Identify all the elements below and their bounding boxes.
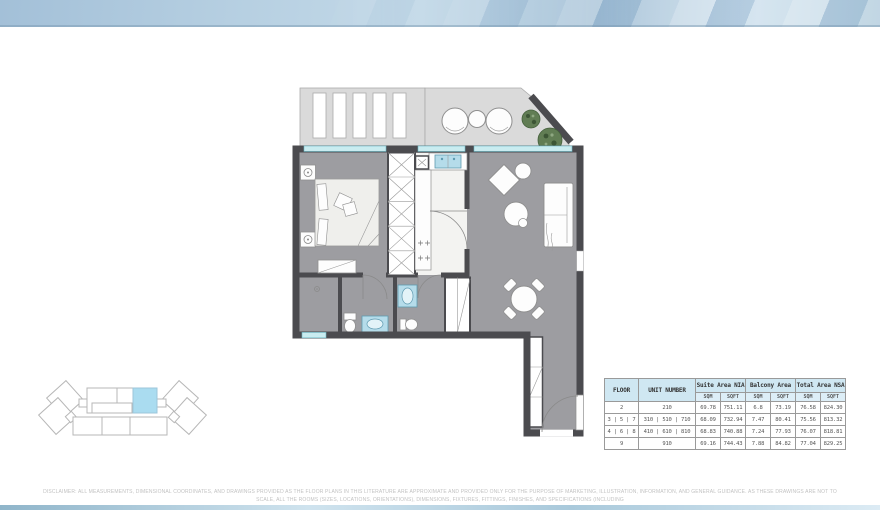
floor-plan: [288, 83, 598, 445]
col-header-balcony: Balcony Area: [746, 379, 796, 393]
toilet-icon: [344, 313, 356, 320]
cell-total-sqm: 76.58: [796, 402, 821, 414]
table-row: 9 910 69.16 744.43 7.88 84.82 77.04 829.…: [605, 438, 846, 450]
balcony-table-icon: [469, 111, 486, 128]
cell-suite-sqft: 744.43: [721, 438, 746, 450]
cell-unit: 910: [639, 438, 696, 450]
cell-total-sqft: 824.30: [821, 402, 846, 414]
cell-balcony-sqm: 7.88: [746, 438, 771, 450]
cell-balcony-sqm: 6.8: [746, 402, 771, 414]
cell-total-sqft: 829.25: [821, 438, 846, 450]
table-row: 4 | 6 | 8 410 | 610 | 810 68.83 740.88 7…: [605, 426, 846, 438]
cell-suite-sqm: 69.16: [696, 438, 721, 450]
subheader-sqm: SQM: [696, 393, 721, 402]
cell-balcony-sqft: 77.93: [771, 426, 796, 438]
cell-balcony-sqm: 7.47: [746, 414, 771, 426]
cell-balcony-sqft: 80.41: [771, 414, 796, 426]
balcony-right: [425, 88, 571, 152]
area-table: FLOOR UNIT NUMBER Suite Area NIA Balcony…: [604, 378, 846, 450]
wardrobe: [388, 153, 415, 276]
bottom-decorative-band: [0, 505, 880, 510]
hall-closet: [445, 278, 470, 333]
cell-suite-sqm: 68.83: [696, 426, 721, 438]
cell-total-sqft: 818.81: [821, 426, 846, 438]
subheader-sqft: SQFT: [821, 393, 846, 402]
col-header-unit: UNIT NUMBER: [639, 379, 696, 402]
top-decorative-band: [0, 0, 880, 27]
subheader-sqm: SQM: [746, 393, 771, 402]
key-plan-highlighted-unit: [133, 388, 157, 413]
col-header-floor: FLOOR: [605, 379, 639, 402]
cell-unit: 310 | 510 | 710: [639, 414, 696, 426]
cell-floor: 9: [605, 438, 639, 450]
cell-total-sqm: 75.56: [796, 414, 821, 426]
cell-suite-sqft: 732.94: [721, 414, 746, 426]
disclaimer-line-1: DISCLAIMER: ALL MEASUREMENTS, DIMENSIONA…: [38, 489, 842, 505]
cell-total-sqm: 76.07: [796, 426, 821, 438]
table-row: 2 210 69.78 751.11 6.8 73.19 76.58 824.3…: [605, 402, 846, 414]
cell-balcony-sqft: 84.82: [771, 438, 796, 450]
cell-floor: 4 | 6 | 8: [605, 426, 639, 438]
cell-total-sqm: 77.04: [796, 438, 821, 450]
cell-total-sqft: 813.32: [821, 414, 846, 426]
subheader-sqft: SQFT: [771, 393, 796, 402]
cell-suite-sqft: 751.11: [721, 402, 746, 414]
col-header-total: Total Area NSA: [796, 379, 846, 393]
cell-unit: 410 | 610 | 810: [639, 426, 696, 438]
cell-suite-sqm: 69.78: [696, 402, 721, 414]
cell-balcony-sqm: 7.24: [746, 426, 771, 438]
entry-corridor: [530, 337, 543, 427]
cell-balcony-sqft: 73.19: [771, 402, 796, 414]
dining-table-icon: [511, 286, 537, 312]
subheader-sqft: SQFT: [721, 393, 746, 402]
key-plan-center: [73, 388, 167, 435]
key-plan: [35, 372, 210, 448]
cell-suite-sqm: 68.09: [696, 414, 721, 426]
subheader-sqm: SQM: [796, 393, 821, 402]
cell-suite-sqft: 740.88: [721, 426, 746, 438]
cell-floor: 2: [605, 402, 639, 414]
balcony-left: [300, 88, 425, 149]
table-row: 3 | 5 | 7 310 | 510 | 710 68.09 732.94 7…: [605, 414, 846, 426]
side-table-icon: [515, 163, 531, 179]
cell-unit: 210: [639, 402, 696, 414]
col-header-suite: Suite Area NIA: [696, 379, 746, 393]
cell-floor: 3 | 5 | 7: [605, 414, 639, 426]
